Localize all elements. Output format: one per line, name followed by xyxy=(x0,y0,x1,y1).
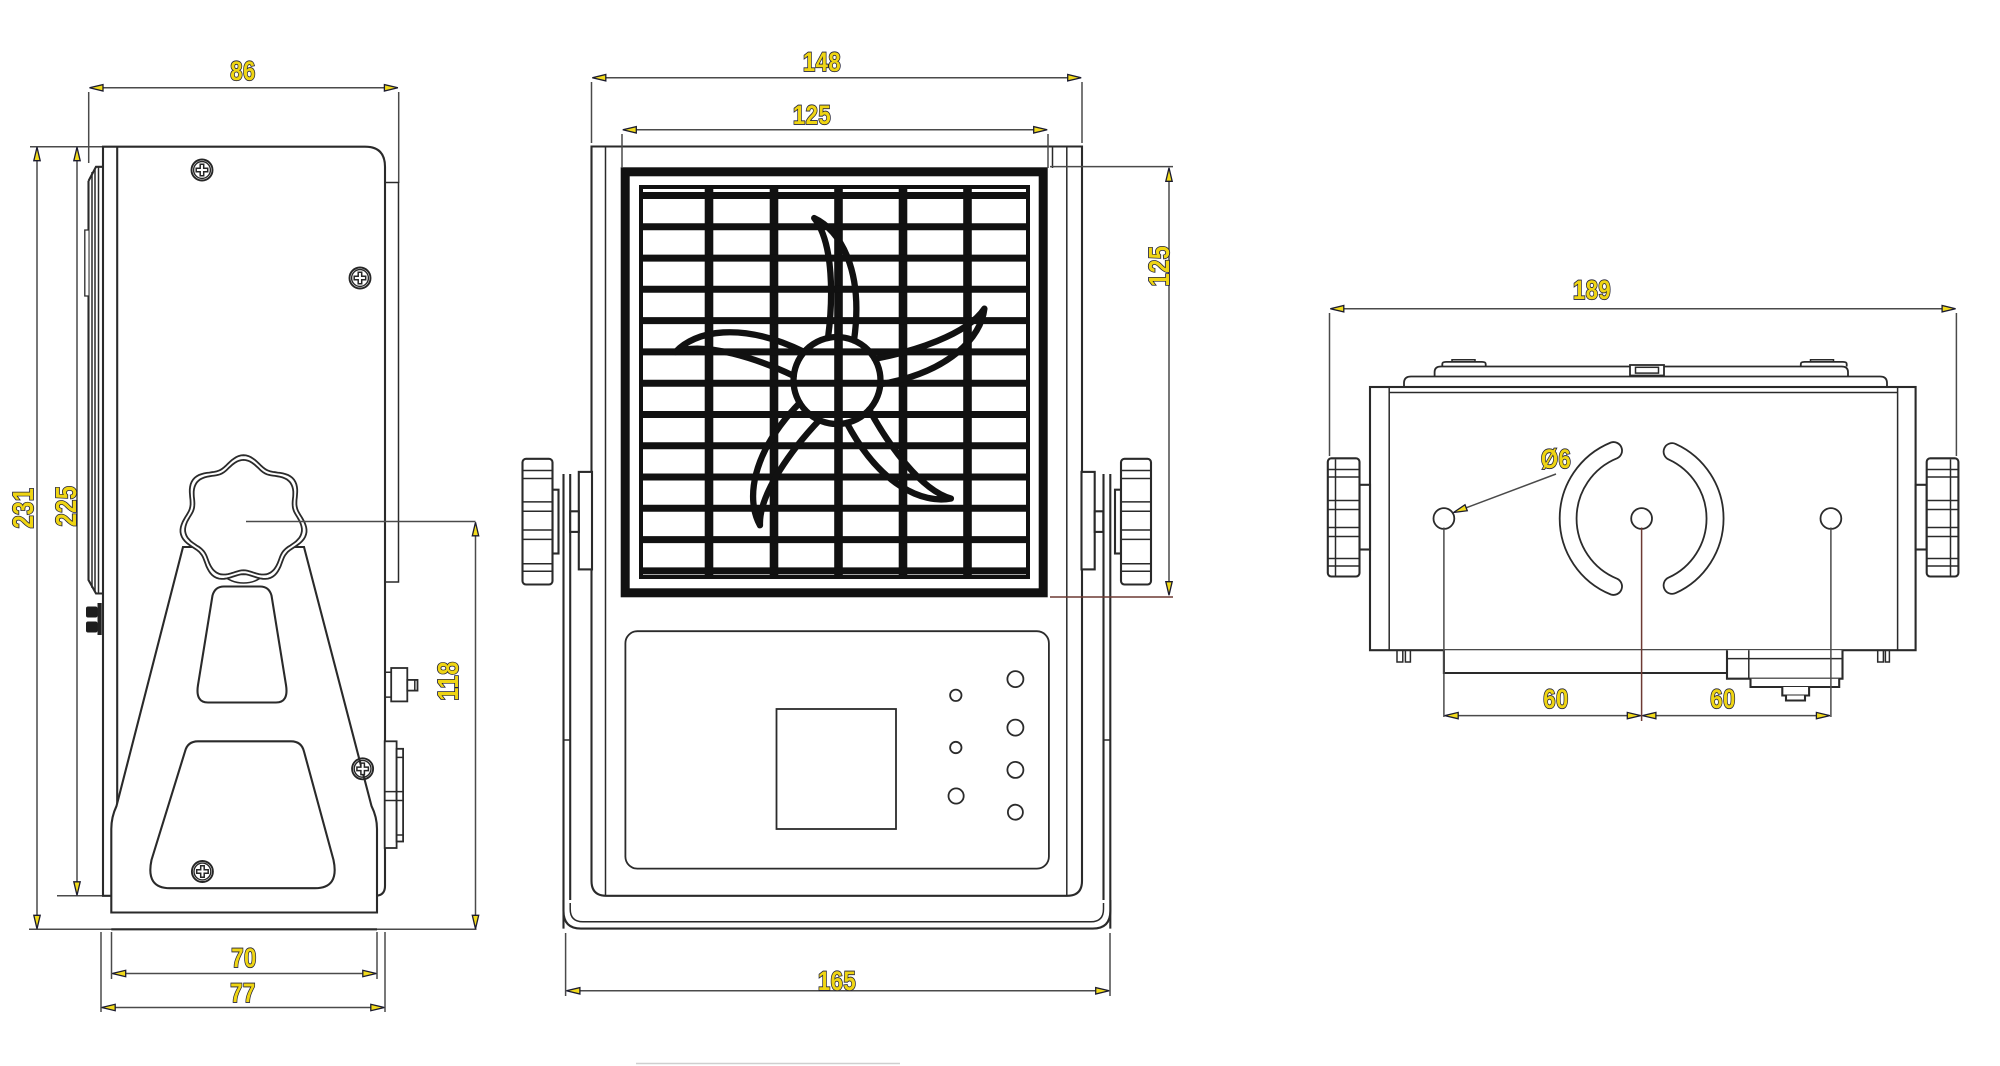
svg-text:231: 231 xyxy=(7,488,40,529)
svg-text:60: 60 xyxy=(1543,685,1568,715)
svg-text:70: 70 xyxy=(231,944,256,974)
svg-text:225: 225 xyxy=(50,486,83,527)
svg-text:77: 77 xyxy=(230,979,255,1009)
svg-text:189: 189 xyxy=(1573,276,1611,306)
svg-text:60: 60 xyxy=(1710,685,1735,715)
svg-text:125: 125 xyxy=(1143,246,1176,287)
svg-text:86: 86 xyxy=(230,57,255,87)
svg-text:Ø6: Ø6 xyxy=(1541,445,1571,475)
svg-text:165: 165 xyxy=(818,967,856,997)
svg-text:148: 148 xyxy=(803,48,841,78)
svg-text:125: 125 xyxy=(793,101,831,131)
svg-text:118: 118 xyxy=(432,661,465,701)
